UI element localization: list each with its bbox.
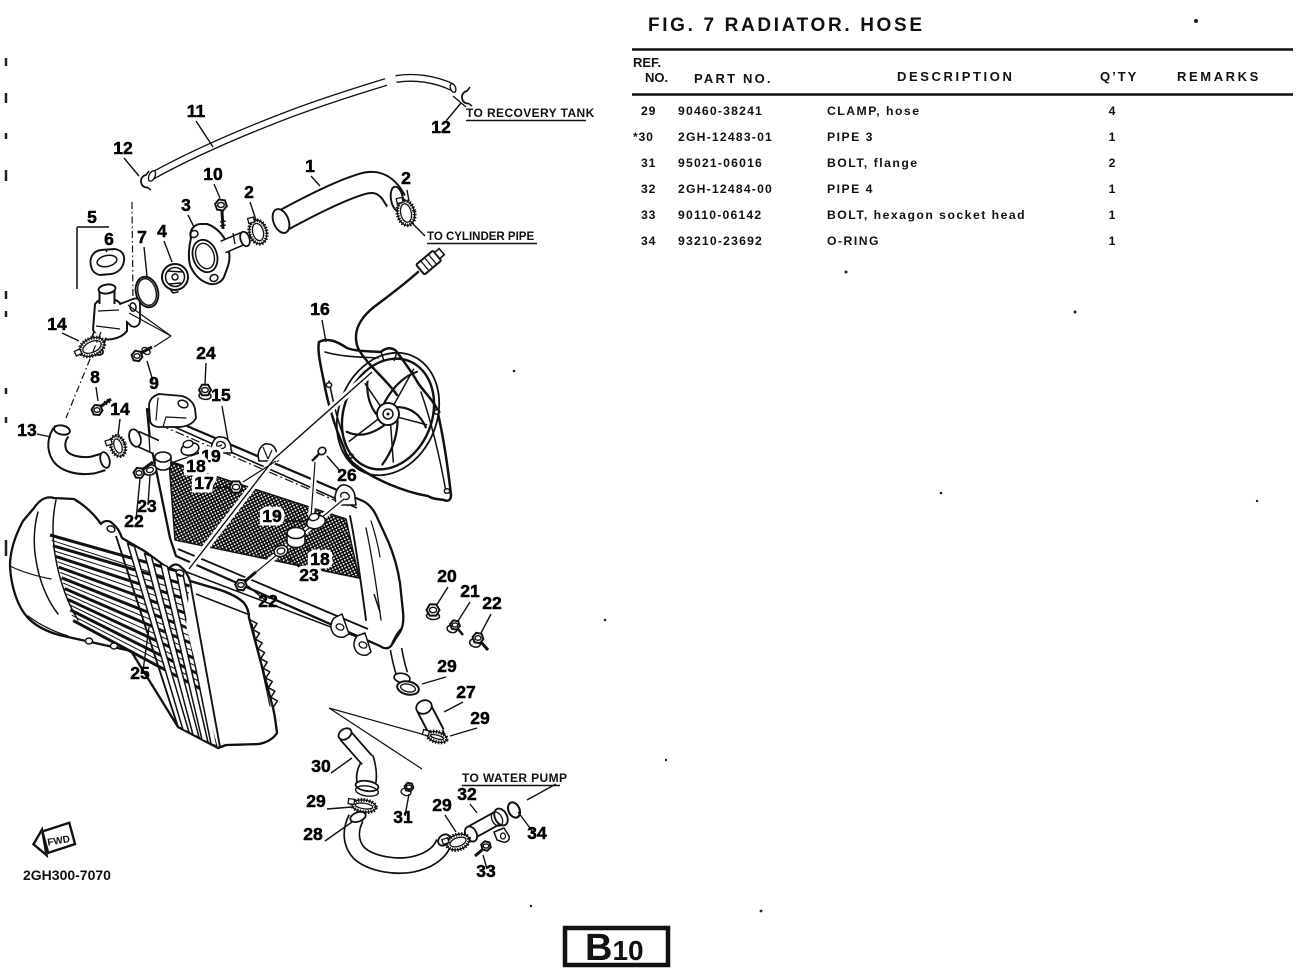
svg-text:BOLT, hexagon socket head: BOLT, hexagon socket head [827,208,1026,222]
svg-text:95021-06016: 95021-06016 [678,156,763,170]
svg-text:2GH300-7070: 2GH300-7070 [23,867,111,883]
svg-text:90460-38241: 90460-38241 [678,104,763,118]
svg-text:2: 2 [1109,156,1116,170]
svg-text:PIPE 3: PIPE 3 [827,130,874,144]
svg-text:FIG. 7 RADIATOR. HOSE: FIG. 7 RADIATOR. HOSE [648,15,925,36]
svg-text:18: 18 [186,456,206,476]
svg-text:17: 17 [194,473,213,493]
svg-text:REMARKS: REMARKS [1177,69,1261,84]
svg-text:7: 7 [137,227,147,247]
svg-text:5: 5 [87,207,97,227]
svg-text:33: 33 [476,861,496,881]
svg-text:29: 29 [437,656,457,676]
svg-text:26: 26 [337,465,357,485]
svg-text:21: 21 [460,581,480,601]
svg-text:14: 14 [110,399,130,419]
svg-text:4: 4 [157,221,167,241]
svg-text:6: 6 [104,229,114,249]
svg-text:NO.: NO. [645,70,668,85]
svg-text:1: 1 [1109,234,1116,248]
svg-text:24: 24 [196,343,216,363]
svg-text:32: 32 [641,182,656,196]
svg-text:BOLT, flange: BOLT, flange [827,156,919,170]
svg-text:27: 27 [456,682,475,702]
svg-text:29: 29 [470,708,490,728]
svg-text:23: 23 [299,565,319,585]
svg-text:22: 22 [258,591,278,611]
svg-text:33: 33 [641,208,656,222]
svg-text:TO CYLINDER PIPE: TO CYLINDER PIPE [427,231,534,243]
svg-text:8: 8 [90,367,100,387]
svg-text:2: 2 [244,182,254,202]
svg-text:29: 29 [641,104,656,118]
svg-text:CLAMP, hose: CLAMP, hose [827,104,920,118]
svg-text:30: 30 [311,756,331,776]
svg-text:22: 22 [124,511,144,531]
svg-text:25: 25 [130,663,150,683]
svg-text:11: 11 [187,101,206,121]
svg-text:19: 19 [262,506,282,526]
svg-text:2: 2 [401,168,411,188]
svg-text:TO RECOVERY TANK: TO RECOVERY TANK [466,106,595,120]
svg-text:2GH-12483-01: 2GH-12483-01 [678,130,773,144]
svg-text:13: 13 [17,420,37,440]
svg-text:REF.: REF. [633,55,661,70]
svg-text:90110-06142: 90110-06142 [678,208,762,222]
svg-text:O-RING: O-RING [827,234,880,248]
svg-text:31: 31 [641,156,656,170]
svg-text:PIPE 4: PIPE 4 [827,182,874,196]
svg-text:20: 20 [437,566,457,586]
svg-text:29: 29 [432,795,452,815]
svg-text:1: 1 [1109,208,1116,222]
svg-text:34: 34 [641,234,656,248]
svg-text:DESCRIPTION: DESCRIPTION [897,69,1014,84]
svg-text:TO WATER PUMP: TO WATER PUMP [462,771,567,785]
svg-text:28: 28 [303,824,323,844]
svg-text:*30: *30 [633,130,654,144]
svg-text:1: 1 [1109,182,1116,196]
svg-text:PART NO.: PART NO. [694,71,773,86]
svg-text:31: 31 [393,807,413,827]
svg-text:22: 22 [482,593,502,613]
svg-text:34: 34 [527,823,547,843]
svg-text:29: 29 [306,791,326,811]
svg-text:15: 15 [211,385,231,405]
svg-text:Q’TY: Q’TY [1100,69,1138,84]
svg-text:32: 32 [457,784,477,804]
svg-text:12: 12 [113,138,133,158]
svg-text:12: 12 [431,117,451,137]
svg-text:1: 1 [305,156,315,176]
svg-text:2GH-12484-00: 2GH-12484-00 [678,182,773,196]
svg-text:10: 10 [203,164,223,184]
svg-text:9: 9 [149,373,159,393]
svg-text:1: 1 [1109,130,1116,144]
svg-text:14: 14 [47,314,67,334]
svg-text:4: 4 [1109,104,1116,118]
svg-text:16: 16 [310,299,330,319]
svg-text:3: 3 [181,195,191,215]
svg-text:93210-23692: 93210-23692 [678,234,763,248]
